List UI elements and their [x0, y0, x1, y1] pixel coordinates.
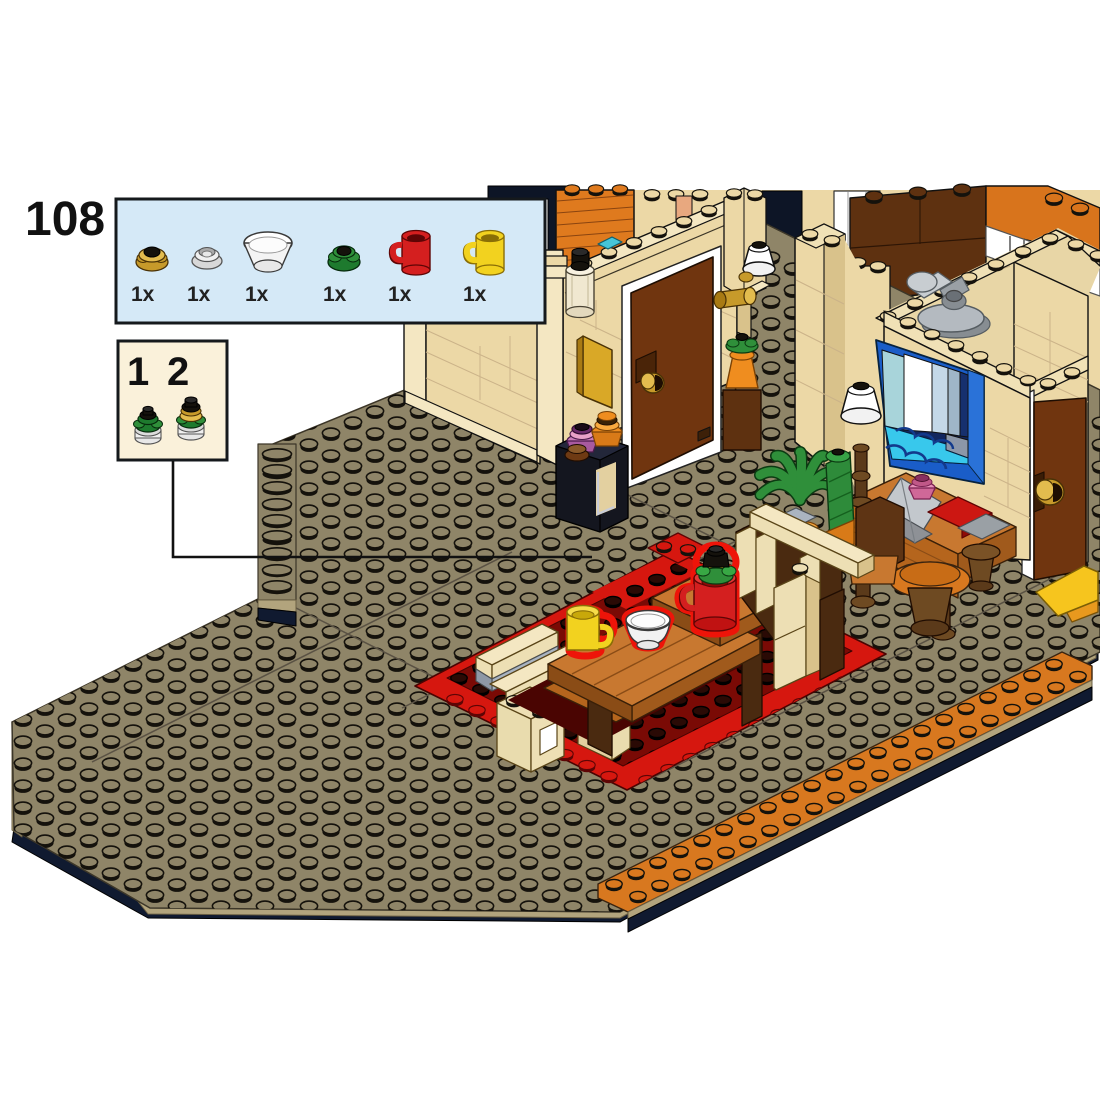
svg-text:1x: 1x — [245, 283, 269, 306]
svg-text:1x: 1x — [131, 283, 155, 306]
svg-text:108: 108 — [25, 193, 105, 246]
svg-text:1x: 1x — [187, 283, 211, 306]
svg-text:2: 2 — [167, 350, 189, 394]
svg-text:1x: 1x — [388, 283, 412, 306]
svg-text:1x: 1x — [323, 283, 347, 306]
svg-text:1x: 1x — [463, 283, 487, 306]
svg-text:1: 1 — [127, 350, 149, 394]
